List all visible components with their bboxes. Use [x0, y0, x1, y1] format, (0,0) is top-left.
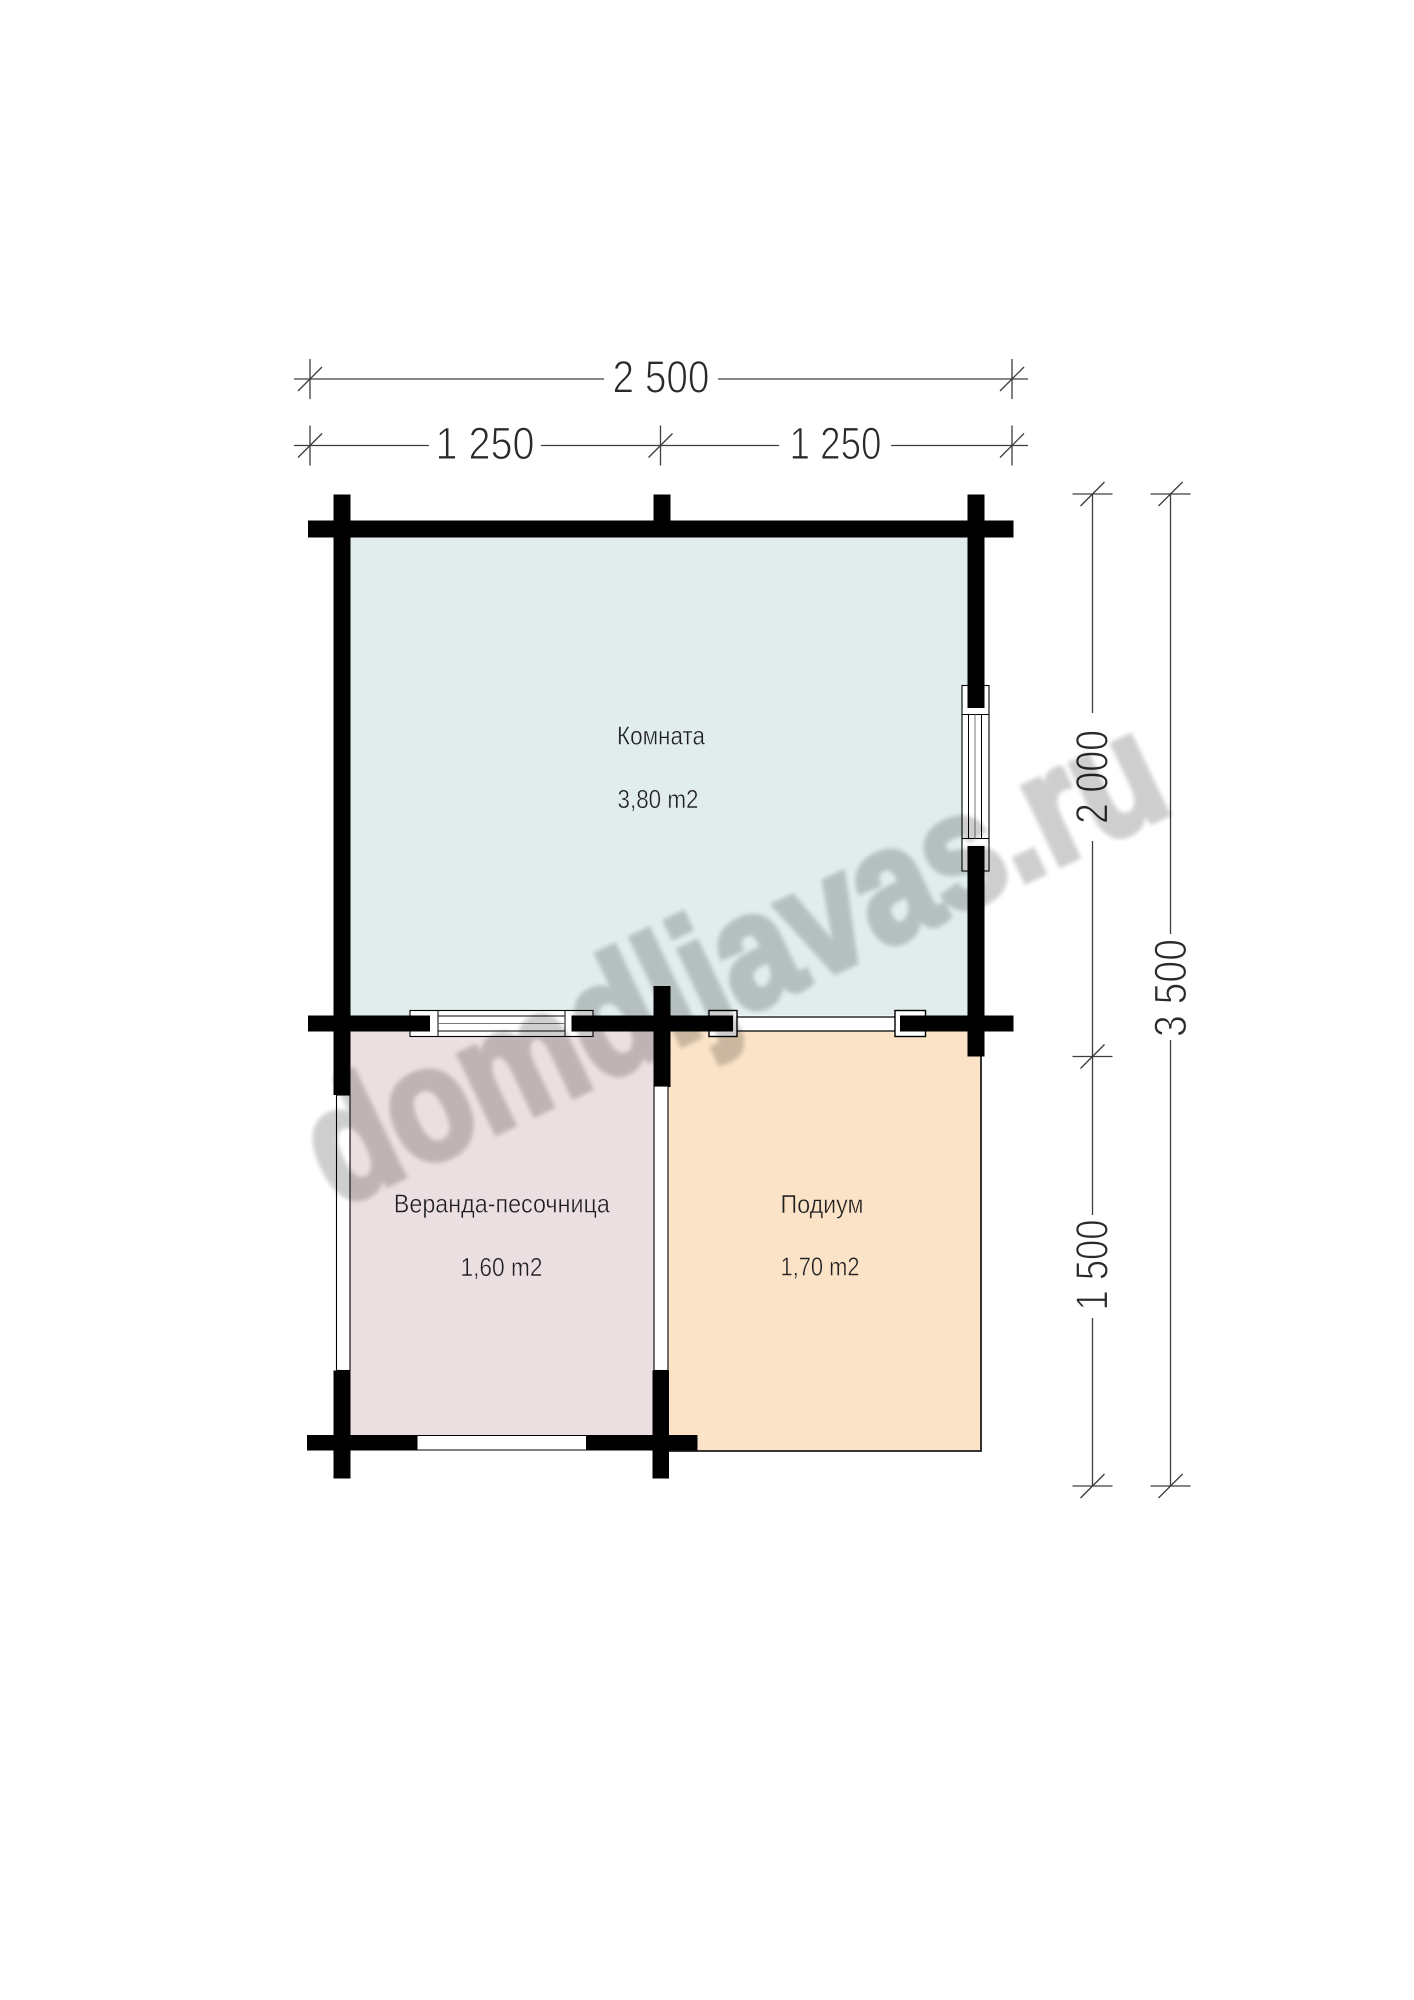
svg-text:1,70 m2: 1,70 m2 [781, 1252, 860, 1282]
svg-text:Комната: Комната [617, 721, 705, 751]
svg-text:2 500: 2 500 [613, 352, 710, 403]
svg-text:1 250: 1 250 [790, 418, 882, 469]
svg-text:1,60 m2: 1,60 m2 [461, 1252, 543, 1282]
svg-text:Подиум: Подиум [781, 1189, 864, 1219]
svg-text:1 500: 1 500 [1067, 1220, 1118, 1311]
svg-text:3,80 m2: 3,80 m2 [618, 784, 699, 814]
svg-text:3 500: 3 500 [1145, 939, 1196, 1037]
svg-text:1 250: 1 250 [436, 418, 535, 469]
